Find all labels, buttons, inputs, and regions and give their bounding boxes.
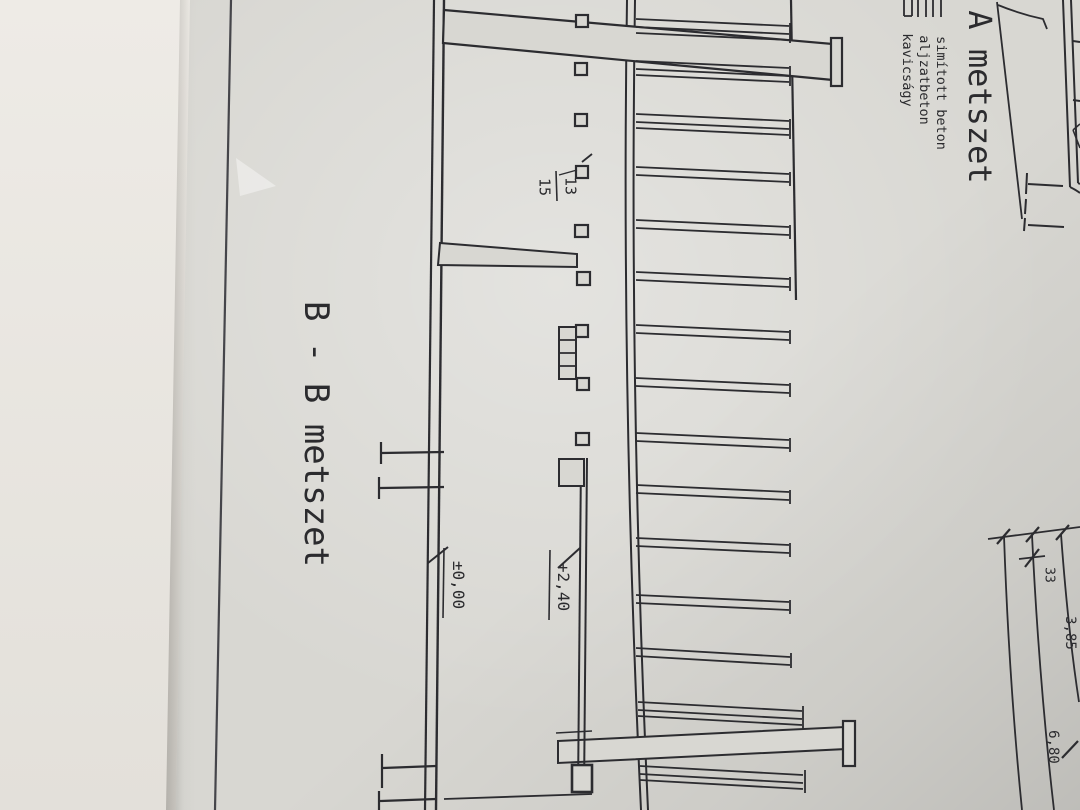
dim-label-680: 6,80 bbox=[1046, 730, 1060, 764]
legend-item-kavicsagy: kavicságy bbox=[899, 33, 913, 106]
purlin-size-numerator: 13 bbox=[563, 177, 578, 195]
section-a-title: A metszet bbox=[964, 10, 996, 183]
dim-label-385: 3,85 bbox=[1063, 616, 1077, 650]
purlin-size-denominator: 15 bbox=[537, 178, 552, 196]
legend-item-aljzatbeton: aljzatbeton bbox=[916, 35, 930, 124]
hatched-beam-section bbox=[559, 327, 576, 379]
dim-label-33: 33 bbox=[1043, 567, 1056, 583]
section-b-title: B - B metszet bbox=[299, 301, 333, 567]
level-label-upper: +2,40 bbox=[555, 563, 571, 611]
photo-of-section-drawing: B - B metszet A metszet simított beton a… bbox=[0, 0, 1080, 810]
level-label-floor: ±0,00 bbox=[450, 561, 466, 609]
legend-item-simitott-beton: simított beton bbox=[933, 36, 947, 150]
big-beam-section bbox=[572, 765, 592, 792]
